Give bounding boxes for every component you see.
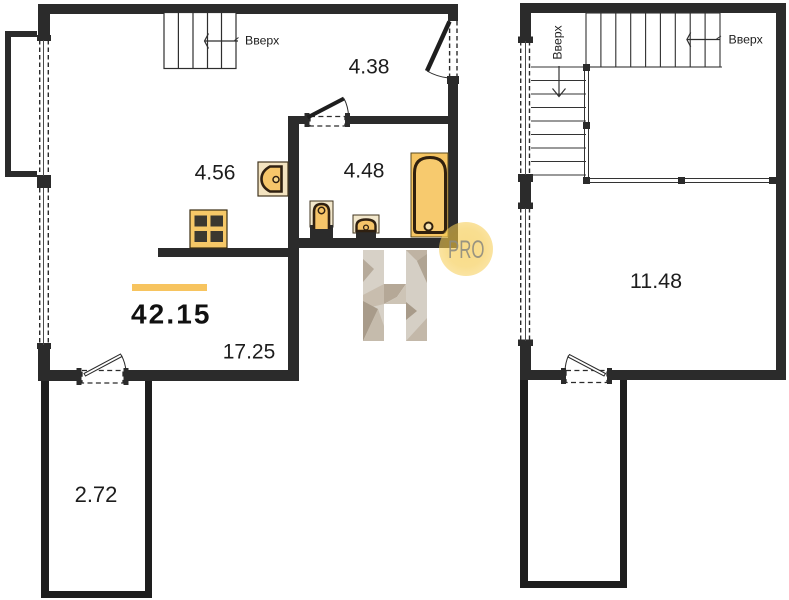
svg-text:PRO: PRO (448, 236, 485, 264)
svg-text:4.48: 4.48 (344, 160, 385, 183)
svg-text:4.38: 4.38 (349, 56, 390, 79)
svg-text:11.48: 11.48 (630, 269, 682, 293)
svg-text:Вверх: Вверх (245, 34, 280, 48)
svg-text:17.25: 17.25 (223, 341, 276, 364)
svg-text:Вверх: Вверх (729, 33, 764, 47)
svg-text:2.72: 2.72 (75, 482, 118, 507)
svg-text:Вверх: Вверх (551, 25, 565, 60)
svg-text:4.56: 4.56 (195, 162, 236, 185)
svg-text:42.15: 42.15 (131, 299, 212, 330)
